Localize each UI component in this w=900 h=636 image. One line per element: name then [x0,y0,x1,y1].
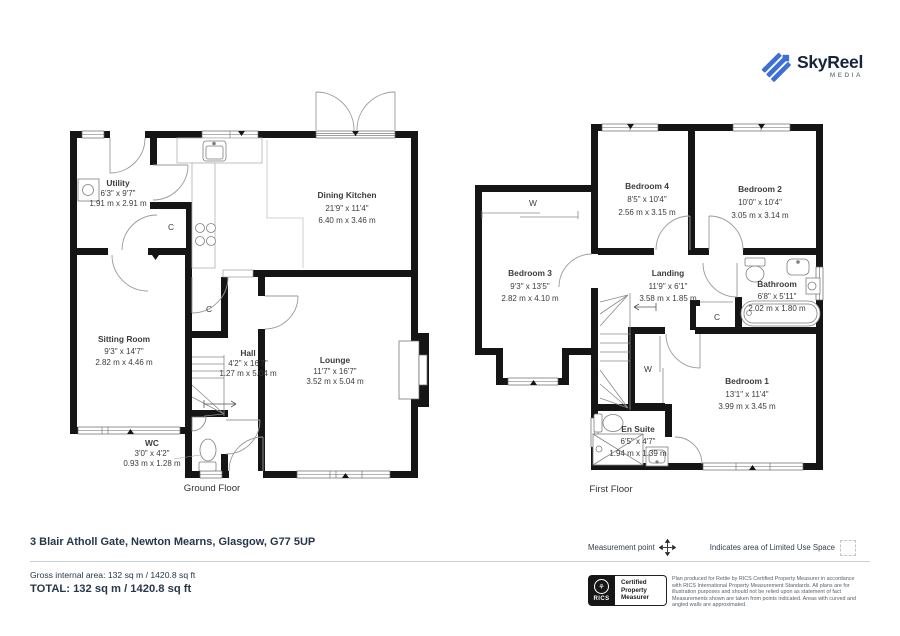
limited-use-label: Indicates area of Limited Use Space [710,543,835,552]
measurement-point-icon [659,539,676,556]
logo-subtitle: MEDIA [830,73,863,80]
ensuite-imperial: 6'5" x 4'7" [621,437,656,446]
landing-imperial: 11'9" x 6'1" [649,282,688,291]
footer-divider [30,561,870,562]
rics-cert-line3: Measurer [621,594,666,602]
ground-floor-plan: Utility 6'3" x 9'7" 1.91 m x 2.91 m Dini… [70,92,429,494]
bedroom2-imperial: 10'0" x 10'4" [738,198,782,207]
sitting-room-metric: 2.82 m x 4.46 m [95,358,153,367]
rics-certified-box: Certified Property Measurer [615,575,667,606]
ensuite-name: En Suite [621,424,655,434]
bathroom-imperial: 6'8" x 5'11" [758,292,797,301]
first-floor-plan: Bedroom 4 8'5" x 10'4" 2.56 m x 3.15 m B… [475,124,823,495]
bedroom1-name: Bedroom 1 [725,376,769,386]
hall-imperial: 4'2" x 16'7" [228,359,268,368]
bedroom2-name: Bedroom 2 [738,184,782,194]
hall-metric: 1.27 m x 5.04 m [219,369,277,378]
ff-fixtures [593,258,820,466]
utility-imperial: 6'3" x 9'7" [101,189,136,198]
wc-metric: 0.93 m x 1.28 m [123,459,181,468]
legend-row: Measurement point Indicates area of Limi… [588,539,870,556]
rics-certification: ⚘ RICS Certified Property Measurer [588,575,667,606]
rics-brand: RICS [594,596,610,602]
wc-name: WC [145,438,159,448]
gf-closet1-label: C [168,222,174,232]
utility-metric: 1.91 m x 2.91 m [89,199,147,208]
rics-emblem-icon: ⚘ [594,579,609,594]
landing-metric: 3.58 m x 1.85 m [639,294,697,303]
first-floor-caption: First Floor [589,484,633,495]
utility-name: Utility [106,178,130,188]
floorplan-page: { "logo": { "name": "SkyReel", "sub": "M… [0,0,900,636]
property-address: 3 Blair Atholl Gate, Newton Mearns, Glas… [30,536,315,548]
bathroom-metric: 2.02 m x 1.80 m [748,304,806,313]
dining-kitchen-imperial: 21'9" x 11'4" [325,204,368,213]
bedroom1-imperial: 13'1" x 11'4" [725,390,768,399]
ff-wardrobe-top-label: W [529,198,537,208]
bedroom4-metric: 2.56 m x 3.15 m [618,208,676,217]
dining-kitchen-metric: 6.40 m x 3.46 m [318,216,376,225]
bedroom4-name: Bedroom 4 [625,181,669,191]
bedroom2-metric: 3.05 m x 3.14 m [731,211,789,220]
camera-tab [783,55,790,62]
bedroom3-name: Bedroom 3 [508,268,552,278]
gf-windows [78,131,427,478]
limited-use-swatch [840,540,856,556]
ff-closet-label: C [714,312,720,322]
lounge-name: Lounge [320,355,351,365]
rics-cert-line1: Certified [621,579,666,587]
gf-closet2-label: C [206,304,212,314]
bathroom-name: Bathroom [757,279,797,289]
plan-disclaimer: Plan produced for Rettie by RICS Certifi… [672,576,864,609]
logo-name: SkyReel [797,54,863,72]
total-area: TOTAL: 132 sq m / 1420.8 sq ft [30,583,191,595]
rics-cert-line2: Property [621,587,666,595]
lounge-imperial: 11'7" x 16'7" [313,367,356,376]
dining-kitchen-name: Dining Kitchen [317,190,376,200]
sitting-room-name: Sitting Room [98,334,150,344]
bedroom1-metric: 3.99 m x 3.45 m [718,402,776,411]
rics-logo: ⚘ RICS [588,575,615,606]
landing-name: Landing [652,268,685,278]
skyreel-logo: SkyReel MEDIA [761,52,863,82]
measurement-point-label: Measurement point [588,543,655,552]
skyreel-camera-icon [761,52,791,82]
bedroom3-imperial: 9'3" x 13'5" [510,282,550,291]
hall-name: Hall [240,348,255,358]
bedroom4-imperial: 8'5" x 10'4" [627,195,667,204]
ensuite-metric: 1.94 m x 1.39 m [609,449,667,458]
wc-imperial: 3'0" x 4'2" [135,449,170,458]
lounge-metric: 3.52 m x 5.04 m [306,377,364,386]
gross-internal-area: Gross internal area: 132 sq m / 1420.8 s… [30,570,195,580]
ff-wardrobe-bed1-label: W [644,364,652,374]
sitting-room-imperial: 9'3" x 14'7" [104,347,144,356]
ground-floor-caption: Ground Floor [184,483,241,494]
bedroom3-metric: 2.82 m x 4.10 m [501,294,559,303]
